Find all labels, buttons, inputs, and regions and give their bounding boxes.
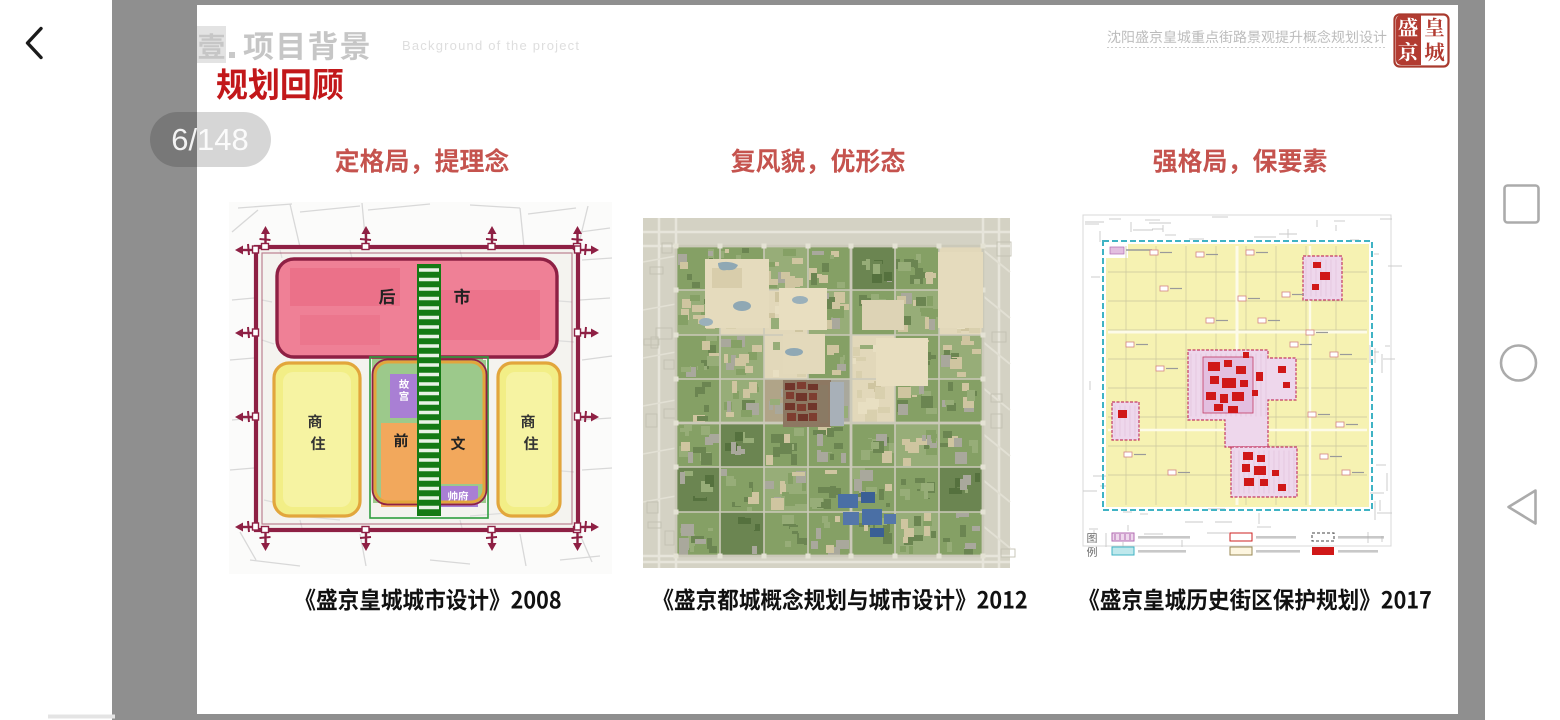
- svg-text:6/148: 6/148: [171, 122, 249, 157]
- svg-text:Background of the project: Background of the project: [402, 38, 580, 53]
